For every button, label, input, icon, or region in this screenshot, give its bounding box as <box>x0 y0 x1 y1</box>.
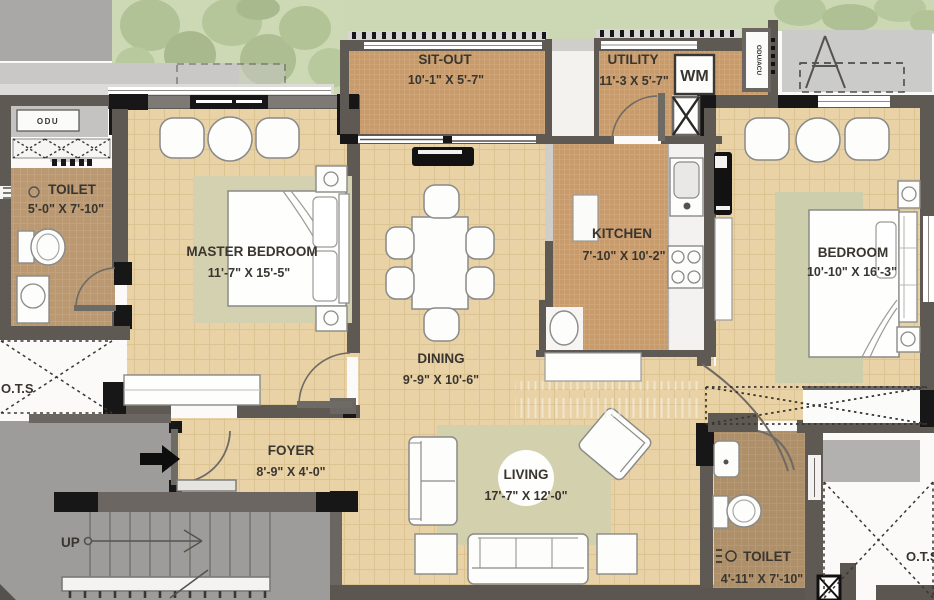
svg-text:11'-3 X 5'-7": 11'-3 X 5'-7" <box>599 74 669 88</box>
svg-text:ODU/ACU: ODU/ACU <box>755 45 762 76</box>
svg-text:9'-9" X 10'-6": 9'-9" X 10'-6" <box>403 373 479 387</box>
svg-text:17'-7" X 12'-0": 17'-7" X 12'-0" <box>484 489 567 503</box>
svg-text:FOYER: FOYER <box>268 443 315 458</box>
svg-text:SIT-OUT: SIT-OUT <box>418 52 472 67</box>
svg-text:10'-1" X 5'-7": 10'-1" X 5'-7" <box>408 73 484 87</box>
svg-text:8'-9" X 4'-0": 8'-9" X 4'-0" <box>256 465 325 479</box>
svg-text:4'-11" X 7'-10": 4'-11" X 7'-10" <box>721 572 804 586</box>
svg-text:MASTER BEDROOM: MASTER BEDROOM <box>186 244 317 259</box>
svg-text:11'-7" X 15'-5": 11'-7" X 15'-5" <box>208 266 291 280</box>
svg-text:10'-10" X 16'-3": 10'-10" X 16'-3" <box>807 265 897 279</box>
svg-text:LIVING: LIVING <box>503 467 548 482</box>
svg-text:UP: UP <box>61 535 80 550</box>
svg-text:BEDROOM: BEDROOM <box>818 245 889 260</box>
svg-text:TOILET: TOILET <box>48 182 97 197</box>
svg-text:TOILET: TOILET <box>743 549 792 564</box>
svg-text:UTILITY: UTILITY <box>608 52 659 67</box>
svg-text:DINING: DINING <box>417 351 464 366</box>
svg-text:WM: WM <box>680 68 708 85</box>
svg-text:7'-10" X 10'-2": 7'-10" X 10'-2" <box>582 249 665 263</box>
svg-text:O.T.S: O.T.S <box>1 381 34 396</box>
svg-text:KITCHEN: KITCHEN <box>592 226 652 241</box>
svg-text:5'-0" X 7'-10": 5'-0" X 7'-10" <box>28 202 104 216</box>
svg-text:ODU: ODU <box>37 117 59 126</box>
svg-text:O.T.S: O.T.S <box>906 549 934 564</box>
